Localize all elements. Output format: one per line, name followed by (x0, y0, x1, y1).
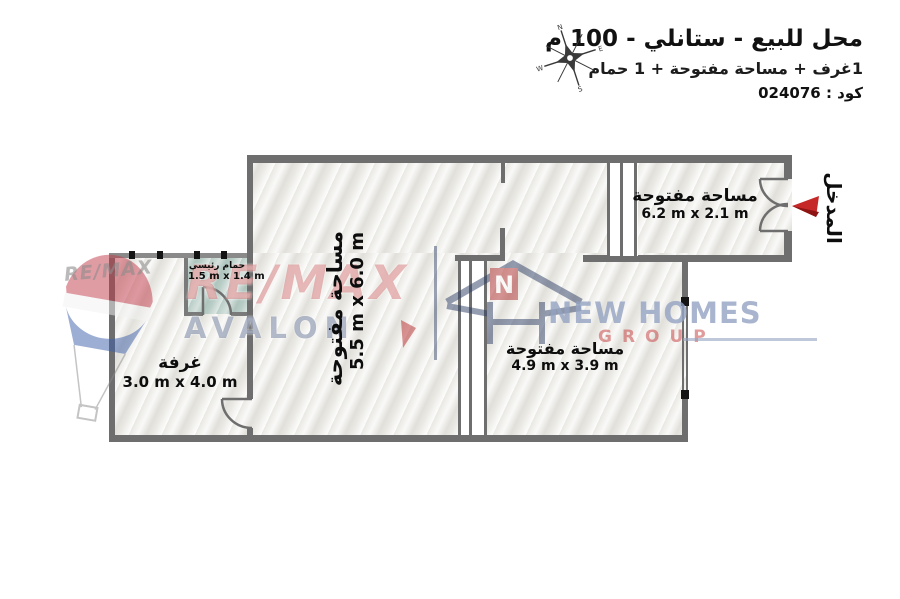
entrance-arrow-icon (792, 196, 819, 217)
floorplan-page: محل للبيع - ستانلي - 100 م 1غرف + مساحة … (0, 0, 900, 599)
label-open-center: مساحة مفتوحة 5.5 m x 6.0 m (323, 231, 393, 371)
label-entrance: المدخل (820, 166, 846, 250)
label-bedroom: غرفة 3.0 m x 4.0 m (110, 353, 250, 391)
label-bathroom: حمام رئيسي 1.5 m x 1.4 m (188, 261, 246, 282)
label-open-top: مساحة مفتوحة 6.2 m x 2.1 m (615, 186, 775, 222)
label-open-bottom: مساحة مفتوحة 4.9 m x 3.9 m (485, 339, 645, 374)
walls-layer (0, 0, 900, 599)
